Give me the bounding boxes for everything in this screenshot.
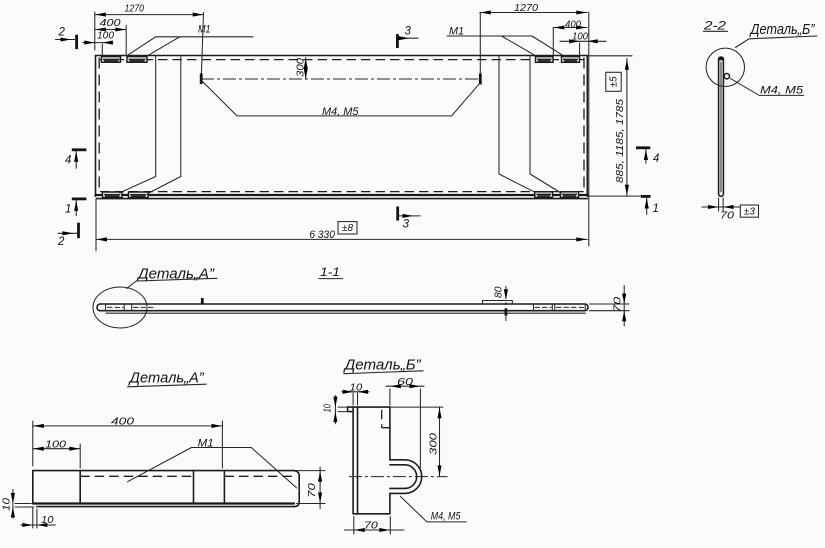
svg-text:1: 1 — [65, 204, 71, 216]
svg-text:70: 70 — [364, 520, 378, 531]
svg-text:70: 70 — [307, 483, 318, 498]
svg-text:70: 70 — [613, 296, 624, 312]
svg-text:100: 100 — [97, 31, 114, 42]
svg-text:Деталь„Б”: Деталь„Б” — [749, 22, 816, 38]
svg-text:4: 4 — [65, 155, 71, 167]
svg-text:100: 100 — [45, 440, 67, 451]
svg-text:10: 10 — [350, 382, 363, 393]
svg-text:80: 80 — [494, 286, 505, 298]
svg-text:100: 100 — [572, 32, 588, 43]
svg-text:1270: 1270 — [514, 3, 538, 14]
svg-text:2: 2 — [58, 27, 66, 39]
svg-text:±8: ±8 — [342, 223, 353, 234]
svg-text:1: 1 — [653, 203, 659, 215]
svg-text:400: 400 — [100, 18, 122, 29]
svg-text:300: 300 — [429, 432, 440, 455]
svg-text:70: 70 — [720, 211, 735, 222]
svg-text:10: 10 — [41, 515, 54, 526]
svg-text:2-2: 2-2 — [703, 21, 727, 33]
svg-text:400: 400 — [565, 20, 581, 31]
svg-text:400: 400 — [111, 417, 135, 428]
svg-text:М4, М5: М4, М5 — [431, 511, 461, 523]
svg-text:2: 2 — [57, 236, 65, 248]
svg-text:4: 4 — [653, 153, 659, 165]
svg-text:300: 300 — [296, 58, 307, 77]
svg-text:М1: М1 — [198, 24, 211, 36]
svg-text:1270: 1270 — [125, 4, 145, 15]
svg-text:±5: ±5 — [609, 76, 620, 87]
svg-text:6 330: 6 330 — [309, 229, 335, 241]
svg-text:М4, М5: М4, М5 — [760, 85, 803, 97]
svg-text:10: 10 — [323, 404, 334, 413]
svg-text:60: 60 — [397, 377, 414, 388]
svg-text:885, 1185, 1785: 885, 1185, 1785 — [615, 99, 626, 183]
svg-text:1-1: 1-1 — [320, 267, 340, 279]
svg-text:3: 3 — [403, 219, 410, 231]
svg-text:3: 3 — [405, 26, 412, 38]
svg-text:10: 10 — [2, 497, 13, 511]
svg-text:Деталь„А”: Деталь„А” — [128, 371, 205, 387]
svg-text:±3: ±3 — [744, 207, 755, 218]
